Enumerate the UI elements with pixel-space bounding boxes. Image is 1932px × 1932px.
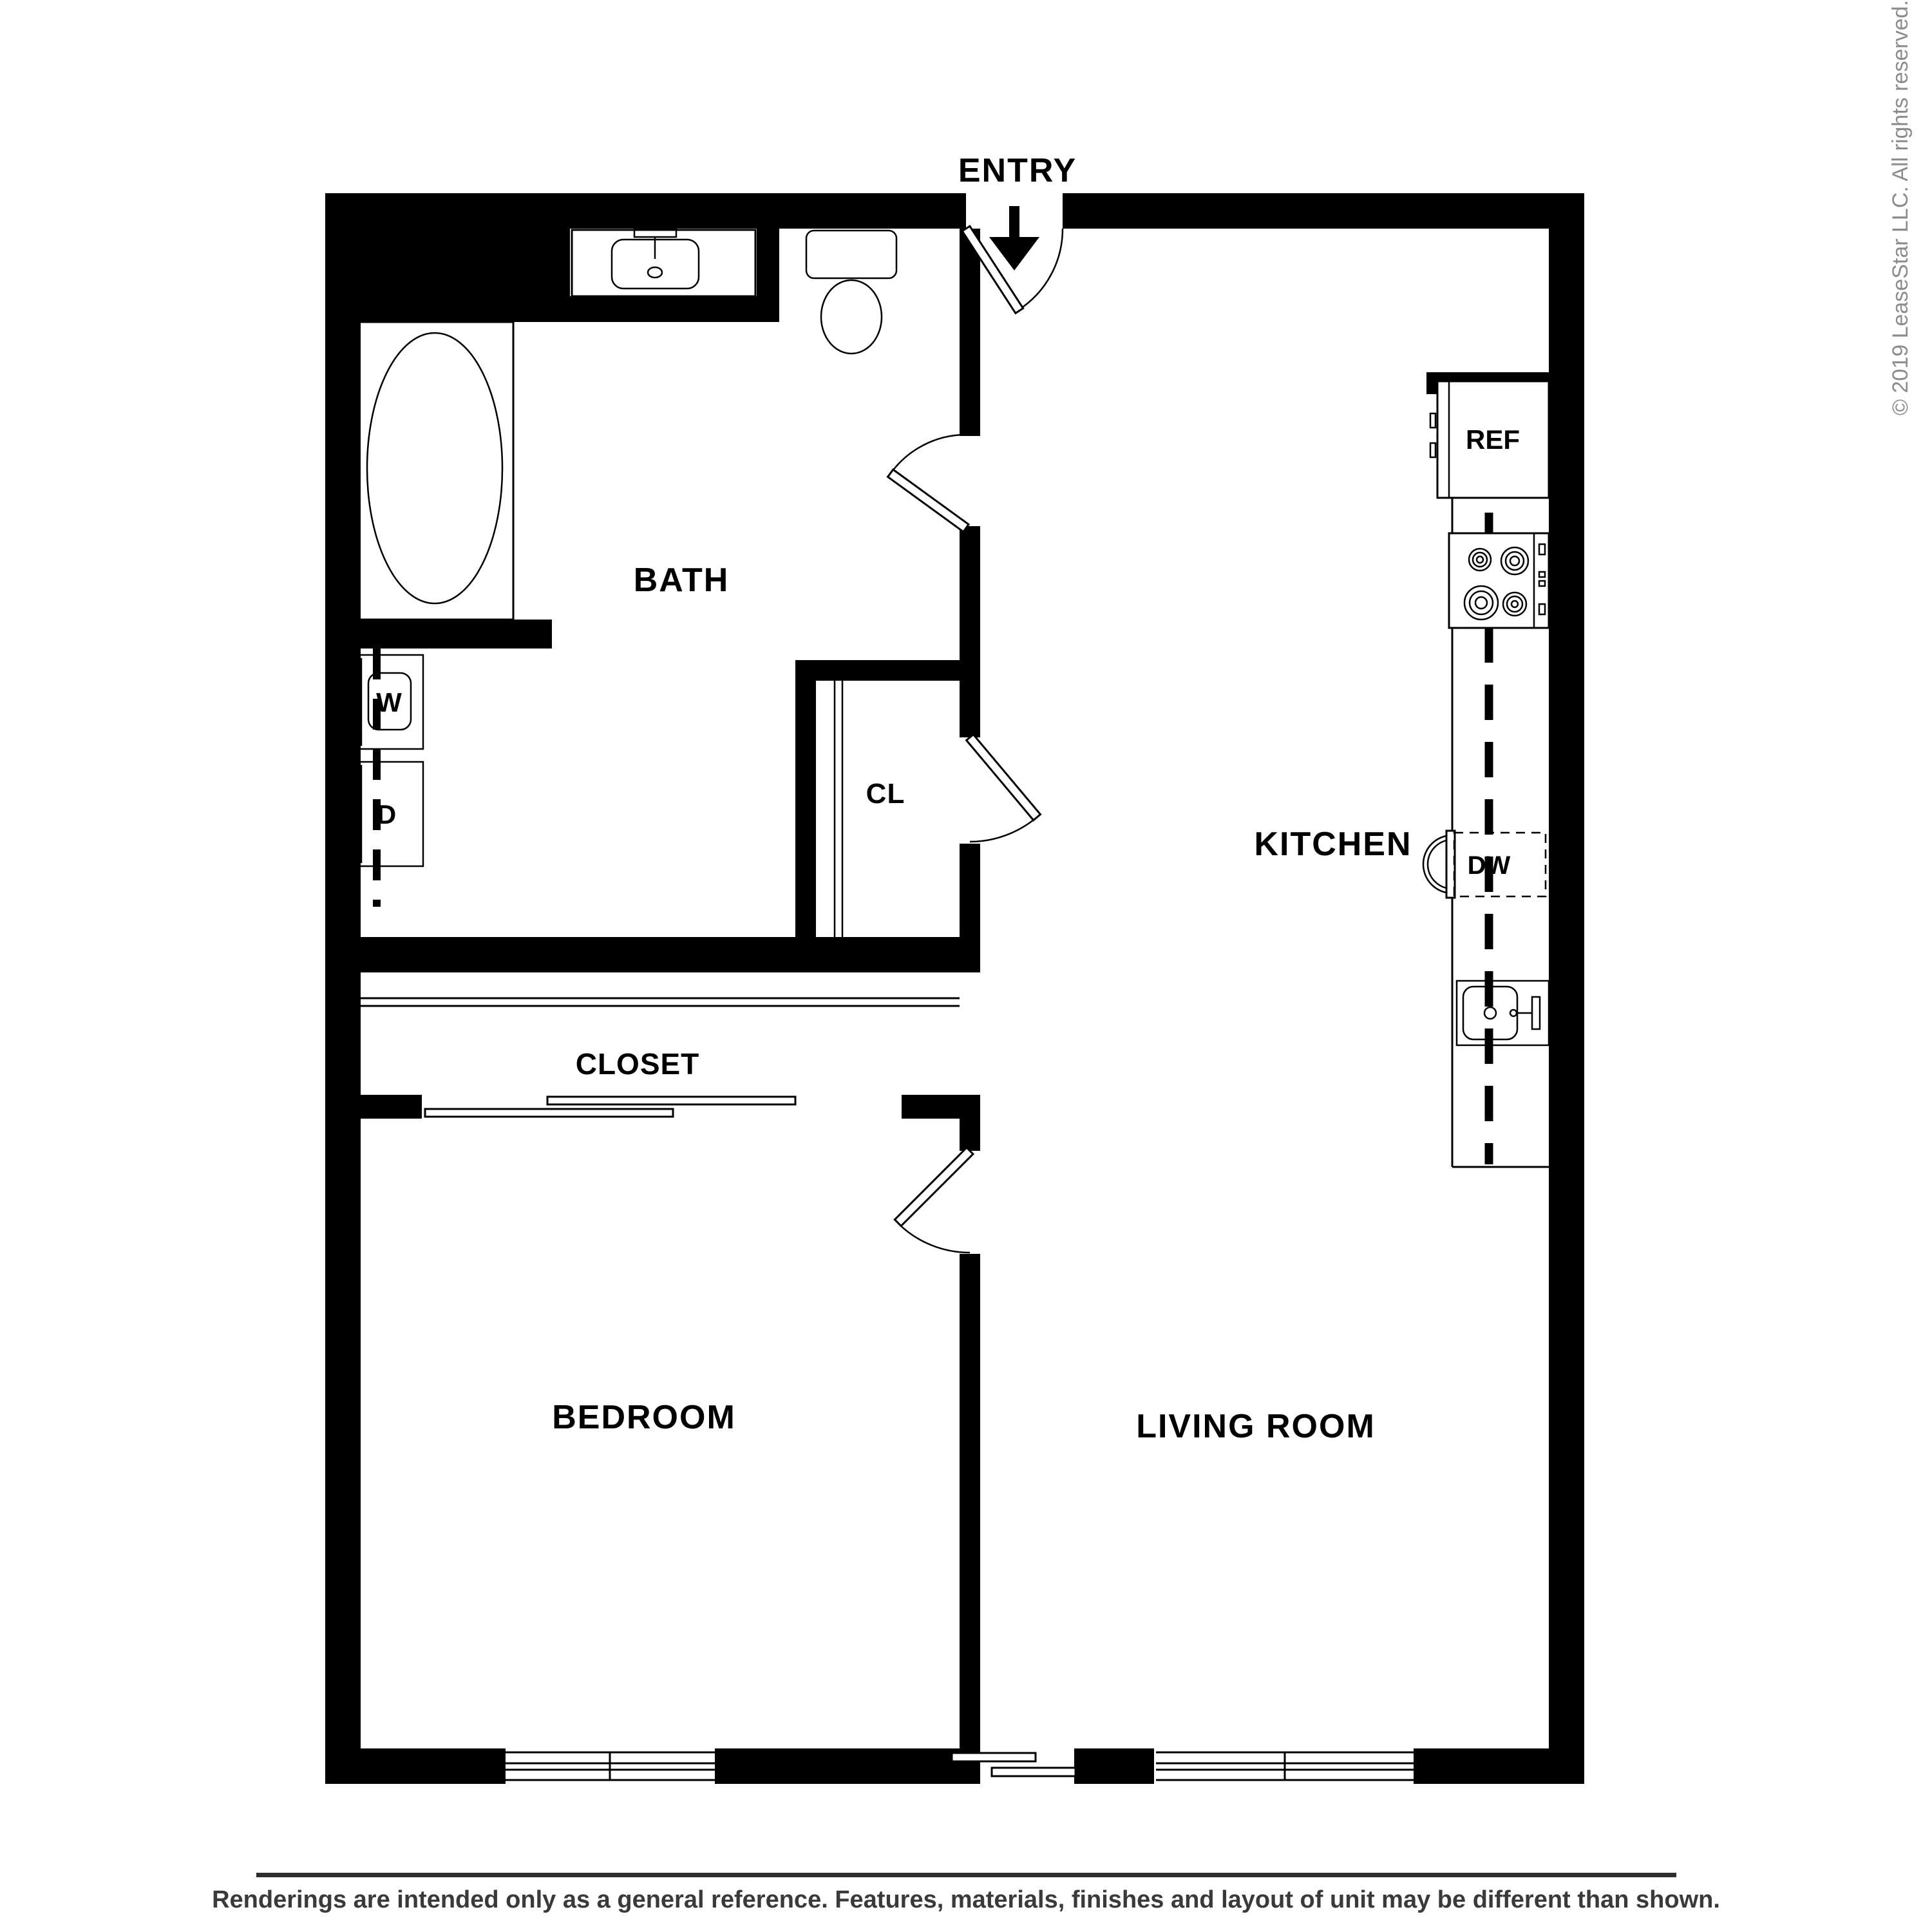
- range-stove: [1449, 533, 1549, 628]
- sliding-door-panel-2: [992, 1768, 1075, 1776]
- bathtub-surround: [359, 322, 513, 620]
- entry-arrow-shaft: [1009, 206, 1019, 240]
- bedroom-door-stub: [960, 1119, 980, 1151]
- entry-label: ENTRY: [958, 152, 1077, 189]
- refrigerator-handle-1: [1430, 413, 1435, 428]
- wall-bottom-seg2: [715, 1748, 980, 1784]
- floor-plan-page: ENTRY BATH KITCHEN CL CLOSET BEDROOM LIV…: [0, 0, 1932, 1932]
- bathtub-basin: [367, 333, 502, 603]
- sink-drain: [1484, 1007, 1496, 1019]
- bedroom-closet-label: CLOSET: [576, 1047, 700, 1081]
- sliding-door-panel-1: [952, 1753, 1036, 1761]
- bedroom-label: BEDROOM: [552, 1399, 736, 1436]
- entry-arrow-head: [989, 237, 1039, 270]
- bath-corner-mass: [325, 193, 570, 322]
- living-room-label: LIVING ROOM: [1136, 1408, 1376, 1445]
- bedroom-door-leaf: [895, 1148, 973, 1226]
- hall-closet-door: [967, 735, 1041, 842]
- cl-closet-left-wall: [795, 681, 816, 937]
- sink-faucet-tip: [1510, 1010, 1517, 1016]
- tub-foot-wall: [325, 620, 552, 649]
- closet-sliding-door-1: [547, 1097, 795, 1104]
- copyright-text: © 2019 LeaseStar LLC. All rights reserve…: [1888, 0, 1913, 415]
- kitchen-counter: [1452, 394, 1549, 1167]
- refrigerator-label: REF: [1466, 424, 1520, 455]
- living-room-window: [1156, 1752, 1414, 1780]
- hall-closet-label: CL: [866, 778, 905, 810]
- closet-slider-stub-left: [361, 1095, 422, 1119]
- closet-slider-stub-right: [902, 1095, 980, 1119]
- wall-bottom-seg1: [325, 1748, 506, 1784]
- cl-closet-top-wall: [795, 660, 980, 681]
- vanity-drain: [648, 267, 662, 278]
- dishwasher-label: DW: [1468, 851, 1511, 880]
- bedroom-window: [506, 1752, 715, 1780]
- entry-arrow-icon: [989, 206, 1039, 270]
- kitchen-sink: [1457, 981, 1549, 1045]
- bath-door: [888, 435, 969, 532]
- bedroom-door: [895, 1148, 973, 1253]
- sink-faucet-bar: [1532, 997, 1540, 1029]
- hall-wall-mid: [960, 526, 980, 737]
- kitchen-label: KITCHEN: [1254, 826, 1412, 863]
- closet-sliding-door-2: [425, 1109, 673, 1117]
- bathroom-vanity: [572, 229, 755, 296]
- vanity-back-ledge: [570, 296, 779, 322]
- washer-label: W: [376, 687, 402, 717]
- interior-walls: [325, 193, 1549, 1748]
- footer-rule: [256, 1873, 1676, 1877]
- hall-closet-door-leaf: [967, 735, 1041, 820]
- toilet-bowl: [821, 280, 882, 354]
- hall-closet-door-arc: [970, 817, 1037, 842]
- bath-door-arc: [891, 435, 966, 473]
- hall-wall-upper: [960, 229, 980, 436]
- wall-left: [325, 193, 361, 1784]
- bedroom-living-divider-wall: [960, 1254, 980, 1748]
- footer-disclaimer: Renderings are intended only as a genera…: [212, 1886, 1720, 1913]
- refrigerator-handle-2: [1430, 443, 1435, 457]
- bedroom-door-arc: [898, 1223, 970, 1253]
- bath-door-leaf: [888, 469, 969, 532]
- toilet: [806, 231, 896, 354]
- wall-bottom-seg3: [1074, 1748, 1154, 1784]
- vanity-side-jog: [757, 229, 779, 296]
- hall-closet: [835, 681, 842, 937]
- floor-plan-drawing: ENTRY BATH KITCHEN CL CLOSET BEDROOM LIV…: [0, 0, 1932, 1932]
- bathtub: [359, 322, 513, 620]
- bath-label: BATH: [634, 562, 730, 599]
- dryer-label: D: [377, 799, 396, 829]
- toilet-tank: [806, 231, 896, 278]
- bath-bottom-wall: [325, 937, 980, 972]
- wall-top-right-of-entry: [1063, 193, 1584, 229]
- wall-bottom-seg4: [1414, 1748, 1584, 1784]
- wall-right: [1549, 193, 1584, 1784]
- sink-counter-box: [1457, 981, 1549, 1045]
